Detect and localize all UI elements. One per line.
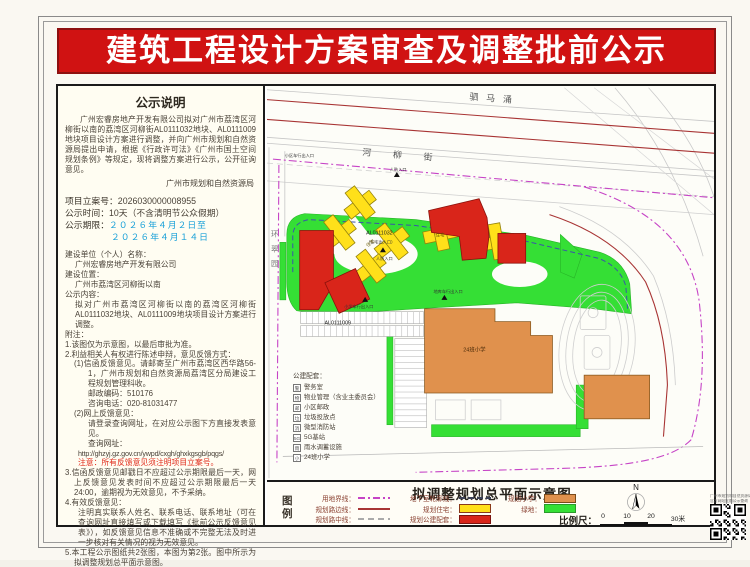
facility-item: 垃垃圾投放点: [293, 413, 433, 423]
authority-signature: 广州市规划和自然资源局: [65, 178, 254, 189]
parcel-label-2: AL0111009: [324, 321, 351, 327]
legend-item: 规划小学：: [501, 493, 576, 504]
note-line: 5.本工程公示图纸共2张图，本图为第2张。图中所示为拟调整规划总平面示意图。: [65, 548, 256, 567]
facilities-list: 公建配套： 警警务室物物业管理（含业主委员会）邮小区邮政垃垃圾投放点消微型消防站…: [293, 372, 433, 463]
time-row: 公示时间：10天（不含清明节公众假期）: [65, 207, 256, 219]
qr-code: [710, 504, 746, 540]
notice-heading: 公示说明: [65, 92, 256, 111]
legend-columns: 用地界线：规划路边线：规划路中线：地下室轮廓线：规划住宅：规划公建配套：规划小学…: [309, 493, 576, 525]
period-row: 公示期限：２０２６年４月２日至: [65, 219, 256, 231]
location-label: 建设位置：: [65, 270, 256, 280]
period-row2: ２０２６年４月１４日: [65, 231, 256, 243]
garage-entrance-label: 地库车行出入口: [434, 288, 463, 294]
note-line: (1)信函反馈意见。请邮寄至广州市荔湾区西华路56-1，广州市规划和自然资源局荔…: [65, 359, 256, 389]
left-road-char1: 环: [271, 229, 278, 238]
time-value: 10天（不含清明节公众假期）: [109, 208, 224, 218]
qr-block: 广州市规划和自然资源局 官方网站批前公示查询: [710, 494, 750, 540]
note-line: 邮政编码：510176: [65, 389, 256, 399]
note-line: 1.该图仅为示意图，以最后审批为准。: [65, 340, 256, 350]
applicant: 广州宏睿房地产开发有限公司: [65, 260, 256, 270]
school-label: 24班小学: [463, 345, 486, 353]
legend-item: 地下室轮廓线：: [400, 493, 491, 504]
left-road-char2: 翠: [271, 244, 279, 253]
content-box: 公示说明 广州宏睿房地产开发有限公司拟对广州市荔湾区河柳街以南的荔湾区河柳街AL…: [56, 84, 716, 527]
note-line: 2.利益相关人有权进行陈述申辩，意见反馈方式：: [65, 350, 256, 360]
district-entrance-label: 小区车行出入口: [285, 152, 314, 158]
school-buildings: [425, 309, 650, 419]
legend-item: 规划住宅：: [400, 504, 491, 515]
note-line: 请登录查询网址，在对应公示图下方直接发表意见。: [65, 419, 256, 439]
page-title: 建筑工程设计方案审查及调整批前公示: [57, 28, 716, 74]
facility-item: 邮小区邮政: [293, 403, 433, 413]
facility-item: 小24班小学: [293, 453, 433, 463]
site-plan-area: 驷马涌 河柳街 环 翠 园 AL0111032 （住宅出入口） 人防入口 人防入…: [267, 86, 714, 480]
note-line: (2)网上反馈意见：: [65, 409, 256, 419]
facility-item: 雨雨水调蓄设施: [293, 443, 433, 453]
period-start: ２０２６年４月２日至: [109, 220, 207, 230]
legend-item: 规划路边线：: [309, 504, 390, 515]
legend-item: 规划公建配套：: [400, 514, 491, 525]
north-label: N: [633, 483, 639, 492]
case-number-row: 项目立案号：2026030000008955: [65, 195, 256, 207]
project-info: 建设单位（个人）名称： 广州宏睿房地产开发有限公司 建设位置： 广州市荔湾区河柳…: [65, 250, 256, 339]
school-entrance-label: 小学车行出入口: [344, 303, 373, 309]
note-line: 3.信函反馈意见邮戳日不应超过公示期限最后一天，网上反馈意见发表时间不应超过公示…: [65, 468, 256, 498]
facility-item: 5G5G基站: [293, 433, 433, 443]
parcel-label-1: AL0111032: [366, 230, 393, 236]
residence-label-2: 住宅: [435, 231, 444, 237]
case-number: 2026030000008955: [118, 196, 196, 206]
legend-item: 用地界线：: [309, 493, 390, 504]
legend-item: 规划路中线：: [309, 514, 390, 525]
notice-panel: 公示说明 广州宏睿房地产开发有限公司拟对广州市荔湾区河柳街以南的荔湾区河柳街AL…: [58, 86, 265, 525]
applicant-label: 建设单位（个人）名称：: [65, 250, 256, 260]
street-label: 河柳街: [362, 146, 455, 164]
facility-item: 物物业管理（含业主委员会）: [293, 393, 433, 403]
period-end: ２０２６年４月１４日: [111, 232, 209, 242]
notice-meta: 项目立案号：2026030000008955 公示时间：10天（不含清明节公众假…: [65, 195, 256, 243]
left-road-char3: 园: [271, 259, 278, 268]
scale-label: 比例尺：: [559, 513, 597, 527]
legend-band: 拟调整规划总平面示意图 图 例 用地界线：规划路边线：规划路中线：地下室轮廓线：…: [267, 480, 714, 525]
note-line: 咨询电话：020-81031477: [65, 399, 256, 409]
north-arrow: N: [625, 482, 647, 514]
notes-label: 附注：: [65, 330, 256, 340]
content-text: 拟对广州市荔湾区河柳街以南的荔湾区河柳街AL0111032地块、AL011100…: [65, 300, 256, 330]
location: 广州市荔湾区河柳街以南: [65, 280, 256, 290]
renfang-entrance-label-2: 人防入口: [390, 166, 407, 172]
note-line: 注明真实联系人姓名、联系电话、联系地址（可在查询网址直接填写或下载填写《批前公示…: [65, 508, 256, 548]
notice-body: 广州宏睿房地产开发有限公司拟对广州市荔湾区河柳街以南的荔湾区河柳街AL01110…: [65, 115, 256, 174]
qr-caption-1: 广州市规划和自然资源局: [710, 494, 750, 499]
qr-caption-2: 官方网站批前公示查询: [710, 499, 750, 504]
notes-list: 1.该图仅为示意图，以最后审批为准。2.利益相关人有权进行陈述申辩，意见反馈方式…: [65, 340, 256, 567]
facility-item: 消微型消防站: [293, 423, 433, 433]
facility-item: 警警务室: [293, 383, 433, 393]
scale-ticks: 0 10 20 30米: [600, 513, 696, 527]
note-line: http://ghzyj.gz.gov.cn/ywpd/cxgh/ghxkgsg…: [65, 449, 256, 459]
scale-bar: 比例尺： 0 10 20 30米: [559, 513, 696, 527]
note-line: 查询网址：: [65, 439, 256, 449]
notice-poster-page: 建筑工程设计方案审查及调整批前公示 公示说明 广州宏睿房地产开发有限公司拟对广州…: [0, 0, 750, 560]
facilities-title: 公建配套：: [293, 372, 433, 382]
renfang-entrance-label: 人防入口: [376, 255, 393, 261]
note-line: 注意：所有反馈意见须注明项目立案号。: [65, 458, 256, 468]
legend-key: 图 例: [282, 495, 293, 521]
note-line: 4.有效反馈意见：: [65, 498, 256, 508]
canal-lines: [267, 100, 714, 154]
canal-label: 驷马涌: [469, 92, 520, 106]
content-label: 公示内容：: [65, 290, 256, 300]
